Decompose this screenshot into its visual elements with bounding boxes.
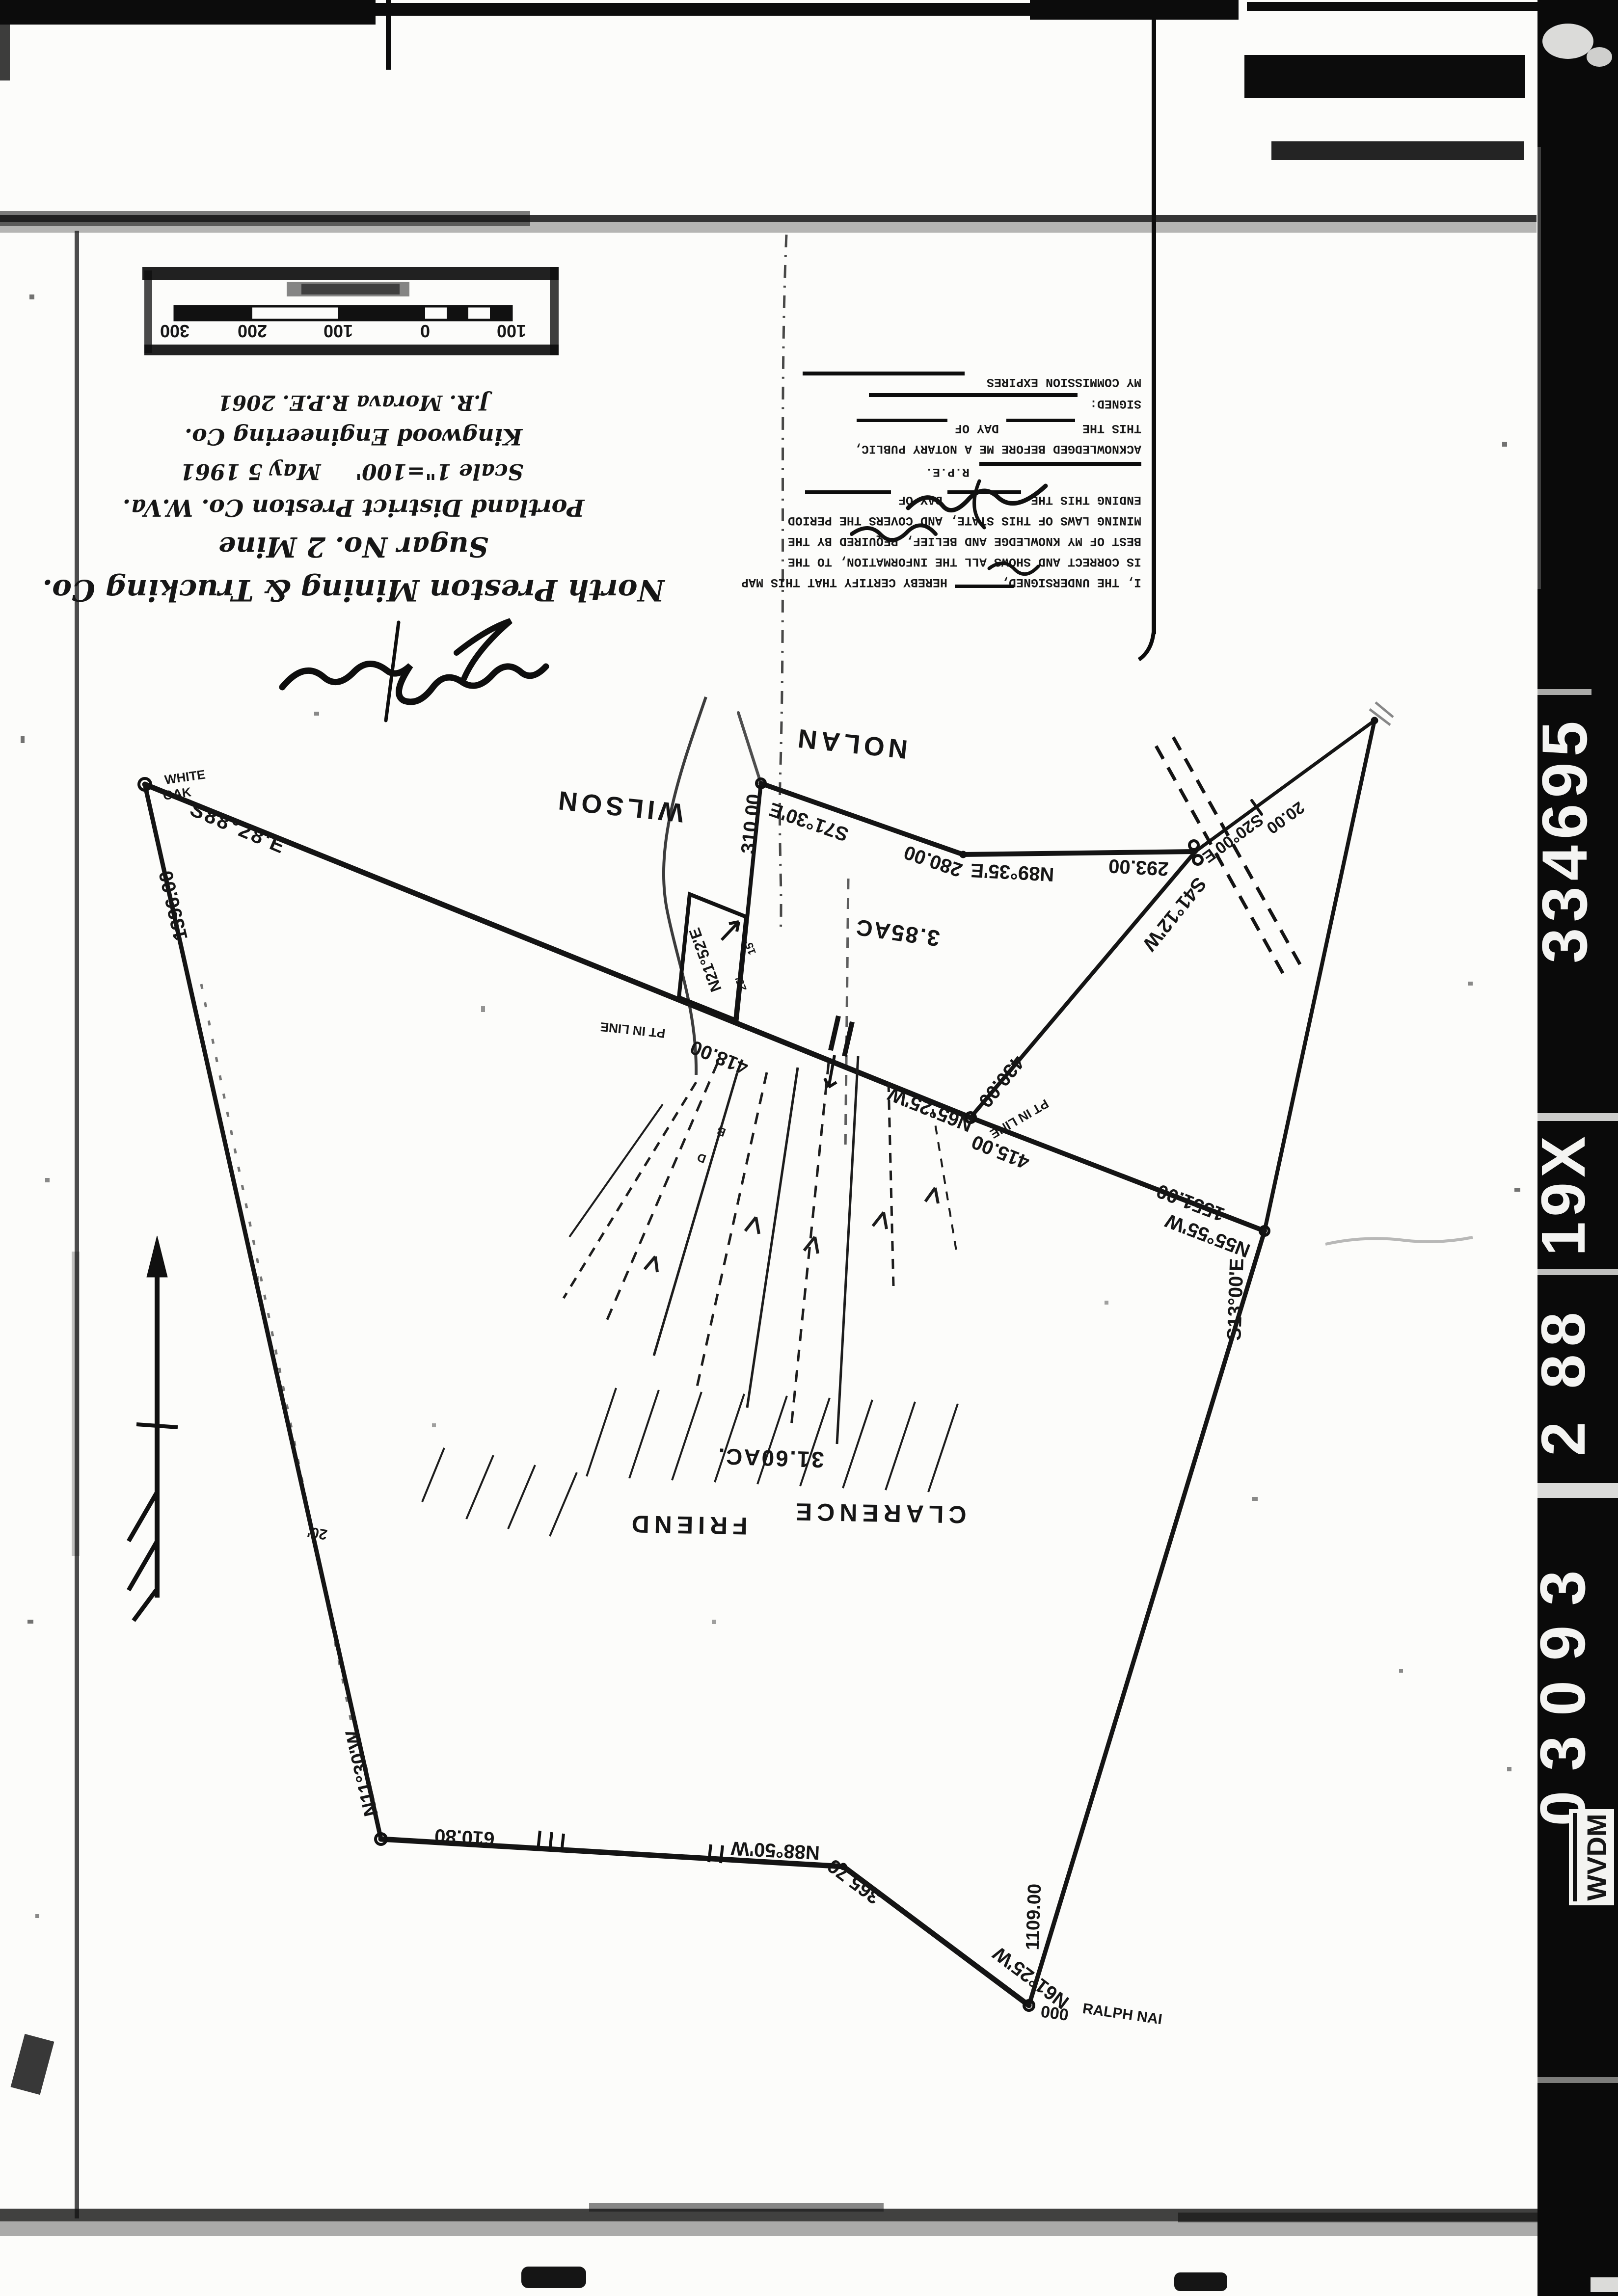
corner-markers	[139, 717, 1378, 2010]
bearing-s4112w: S41°12'W	[1138, 873, 1211, 955]
distance-293: 293.00	[1108, 855, 1169, 880]
cert-line2: IS CORRECT AND SHOWS ALL THE INFORMATION…	[788, 555, 1141, 569]
cert-commission-label: MY COMMISSION EXPIRES	[987, 375, 1141, 389]
title-engineer: Kingwood Engineering Co.	[185, 424, 523, 450]
cert-rpe-label: R.P.E.	[925, 465, 970, 479]
acreage-large: 31.60AC.	[716, 1443, 824, 1473]
owner-label-clarence: CLARENCE	[790, 1498, 967, 1528]
offset-20ft: 20'	[306, 1523, 329, 1543]
bearing-s8828e: S88°28'E	[187, 797, 290, 858]
cert-ack2a: THIS THE	[1082, 421, 1141, 435]
distance-310: 310.00	[737, 793, 765, 855]
film-strip: 334695 19X 2 88 03093 WVDM	[1527, 0, 1618, 2296]
title-scale: Scale 1"=100'	[355, 459, 524, 484]
scale-bar: 100 0 100 200 300	[142, 267, 559, 355]
film-id-upper: 19X	[1529, 1131, 1598, 1256]
distance-280: 280.00	[901, 841, 965, 881]
film-id-top: 334695	[1529, 715, 1600, 963]
scale-tick-label: 100	[324, 321, 353, 341]
title-date: May 5 1961	[180, 459, 322, 484]
corner-tree-white: WHITE	[163, 767, 206, 787]
distance-430: 430.00	[974, 1051, 1029, 1112]
title-block: North Preston Mining & Trucking Co. Suga…	[42, 391, 665, 607]
cert-line5a: ENDING THIS THE	[1031, 493, 1141, 507]
distance-610: 610.80	[434, 1825, 495, 1849]
bearing-n2152e: N21°52'E	[685, 926, 725, 994]
cert-ack1: ACKNOWLEDGED BEFORE ME A NOTARY PUBLIC,	[854, 442, 1141, 456]
title-company: North Preston Mining & Trucking Co.	[42, 573, 665, 607]
bearing-s7130e: S71°30'E	[766, 798, 851, 845]
bearing-n8935e: N89°35'E	[970, 859, 1054, 885]
cert-line1b: HEREBY CERTIFY THAT THIS MAP	[741, 575, 947, 589]
road-dashed	[1156, 737, 1303, 979]
bearing-n6525w: N65°25'W	[885, 1083, 976, 1136]
title-mine: Sugar No. 2 Mine	[218, 531, 488, 563]
distance-365: 365.76	[824, 1855, 885, 1908]
film-frame-gap	[1537, 2077, 1618, 2083]
title-registration: J.R. Morava R.P.E. 2061	[218, 391, 492, 415]
tie-line-short	[845, 879, 848, 1153]
cert-line3: BEST OF MY KNOWLEDGE AND BELIEF, REQUIRE…	[788, 534, 1141, 548]
tick-25: 25'	[732, 975, 749, 992]
scale-tick-label: 0	[420, 321, 430, 341]
cert-line4: MINING LAWS OF THIS STATE, AND COVERS TH…	[788, 513, 1141, 528]
distance-1396: 1396.00	[155, 869, 192, 943]
north-arrow	[129, 1236, 178, 1621]
cert-ack2b: DAY OF	[955, 421, 999, 435]
pt-in-line-left: PT IN LINE	[599, 1019, 666, 1041]
distance-20: 20.00	[1263, 798, 1308, 838]
owner-label-nolan: NOLAN	[793, 723, 909, 764]
scale-tick-label: 300	[160, 321, 189, 341]
cert-line1a: I, THE UNDERSIGNED,	[1001, 575, 1141, 589]
film-frame-gap	[1537, 1269, 1618, 1275]
workings-letter-d: D	[696, 1150, 708, 1165]
owner-label-ralph: RALPH NAI	[1081, 2001, 1163, 2028]
bearing-n1130w: N11°30'W	[342, 1728, 382, 1818]
film-id-mid: 2 88	[1529, 1304, 1598, 1456]
distance-1109: 1109.00	[1023, 1883, 1046, 1950]
film-scratch-blob	[1542, 24, 1593, 59]
scale-tick-label: 200	[238, 321, 267, 341]
certification-block: I, THE UNDERSIGNED, HEREBY CERTIFY THAT …	[741, 372, 1141, 589]
film-frame-gap	[1537, 1113, 1618, 1121]
surveyor-signature	[282, 621, 546, 721]
mine-workings-fan	[564, 1056, 957, 1444]
cert-signed-label: SIGNED:	[1090, 397, 1141, 411]
triple-o-mark: 000	[1040, 2002, 1070, 2024]
agency-code: WVDM	[1581, 1814, 1612, 1900]
film-scratch-blob	[1587, 47, 1612, 67]
film-frame-gap	[1537, 1483, 1618, 1498]
bearing-n8850w: N88°50'W	[730, 1837, 820, 1863]
owner-label-friend: FRIEND	[626, 1510, 748, 1540]
scanned-map-sheet: 100 0 100 200 300 North Preston Mining &…	[0, 0, 1618, 2296]
scale-tick-label: 100	[497, 321, 526, 341]
owner-label-wilson: WILSON	[553, 785, 685, 828]
bearing-s1300e: S13°00'E	[1223, 1258, 1248, 1341]
creek-line	[664, 697, 706, 1075]
acreage-small: 3.85AC	[853, 914, 942, 952]
title-district: Portland District Preston Co. W.Va.	[123, 494, 586, 521]
film-frame-gap	[1537, 689, 1591, 695]
plat-drawing: 100 0 100 200 300 North Preston Mining &…	[0, 0, 1618, 2296]
film-id-bottom: 03093	[1527, 1550, 1598, 1826]
workings-letter-b: B	[715, 1123, 728, 1139]
